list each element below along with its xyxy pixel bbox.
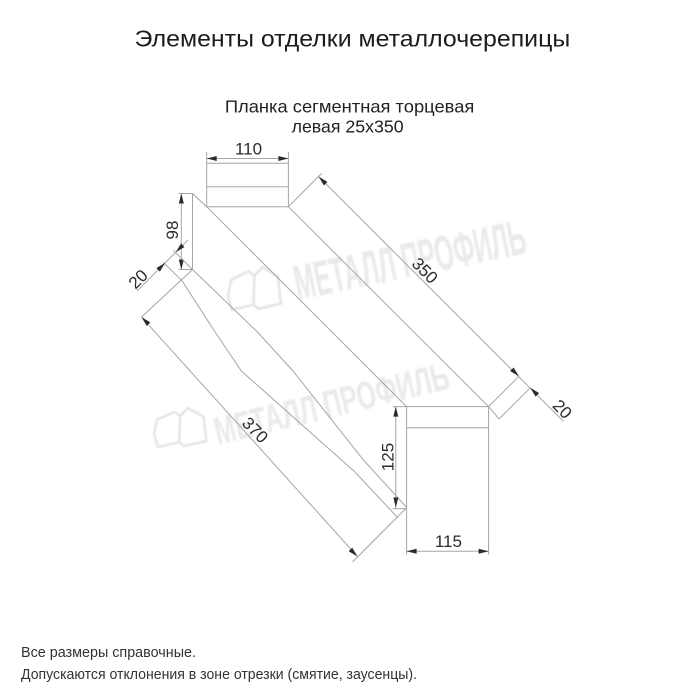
svg-text:Все размеры справочные.: Все размеры справочные. [21,644,196,661]
svg-text:Допускаются отклонения в зоне: Допускаются отклонения в зоне отрезки (с… [21,666,417,683]
svg-text:Планка сегментная торцевая: Планка сегментная торцевая [225,97,475,117]
svg-text:115: 115 [435,532,462,551]
svg-text:левая 25х350: левая 25х350 [292,117,404,137]
svg-text:Элементы отделки металлочерепи: Элементы отделки металлочерепицы [135,25,571,51]
svg-text:98: 98 [163,221,182,240]
svg-text:125: 125 [379,443,398,471]
svg-text:110: 110 [235,140,262,159]
